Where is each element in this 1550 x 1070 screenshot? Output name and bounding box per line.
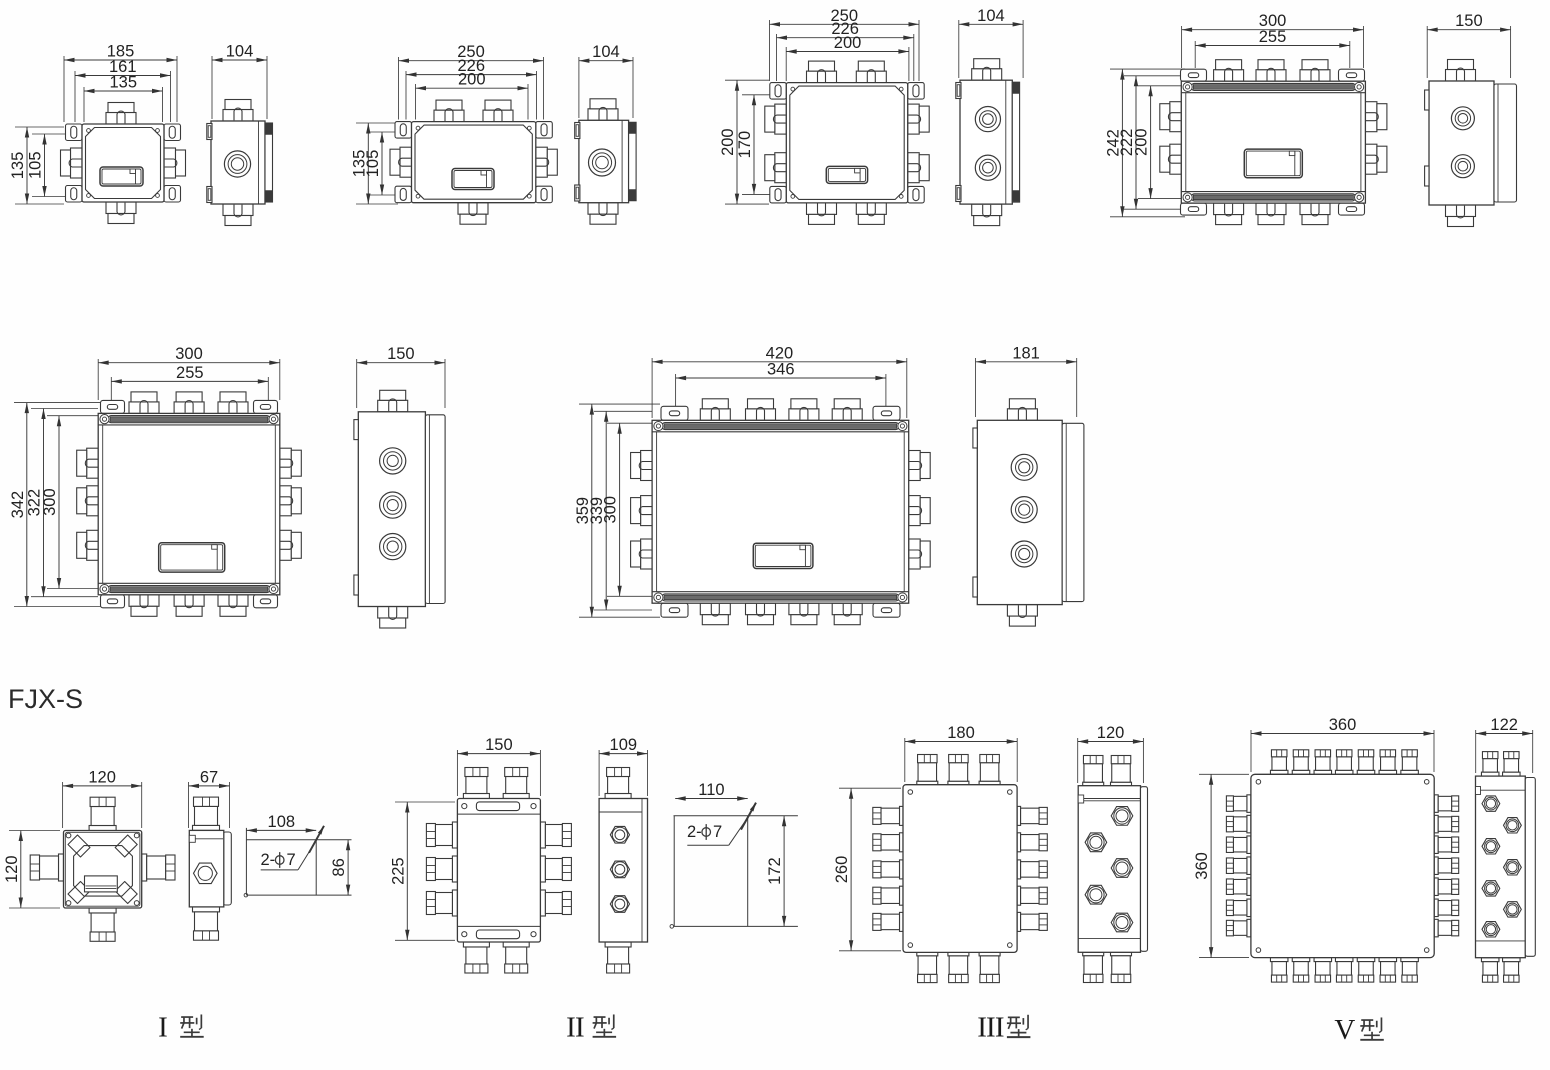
svg-text:360: 360 [1193, 852, 1211, 880]
svg-text:104: 104 [977, 7, 1005, 25]
svg-text:255: 255 [176, 364, 204, 382]
svg-text:200: 200 [834, 34, 862, 52]
svg-text:172: 172 [766, 857, 784, 885]
svg-text:104: 104 [592, 43, 620, 61]
svg-text:105: 105 [27, 151, 45, 179]
svg-text:200: 200 [458, 71, 486, 89]
svg-text:II: II [566, 1012, 584, 1044]
svg-text:V: V [1334, 1014, 1355, 1046]
svg-text:III: III [977, 1012, 1004, 1044]
svg-text:135: 135 [109, 74, 137, 92]
svg-text:7: 7 [287, 851, 296, 869]
svg-text:200: 200 [719, 128, 737, 156]
svg-text:104: 104 [226, 43, 254, 61]
svg-text:2-: 2- [687, 823, 702, 841]
svg-text:170: 170 [736, 131, 754, 159]
svg-text:181: 181 [1012, 344, 1040, 362]
svg-text:260: 260 [833, 856, 851, 884]
svg-text:255: 255 [1259, 28, 1287, 46]
svg-text:360: 360 [1329, 716, 1357, 734]
svg-text:346: 346 [767, 361, 795, 379]
svg-text:342: 342 [9, 491, 27, 519]
svg-text:110: 110 [698, 781, 724, 799]
svg-text:86: 86 [330, 858, 348, 876]
svg-text:120: 120 [1097, 724, 1125, 742]
svg-text:300: 300 [175, 345, 203, 363]
svg-text:180: 180 [947, 724, 975, 742]
svg-text:67: 67 [200, 768, 218, 786]
svg-text:120: 120 [88, 768, 116, 786]
svg-text:150: 150 [1455, 12, 1483, 30]
svg-text:108: 108 [268, 813, 296, 831]
svg-text:2-: 2- [261, 851, 276, 869]
svg-text:225: 225 [389, 857, 407, 885]
svg-text:120: 120 [3, 855, 21, 883]
svg-text:FJX-S: FJX-S [8, 684, 83, 714]
svg-text:I: I [158, 1012, 168, 1044]
svg-text:122: 122 [1490, 716, 1518, 734]
svg-text:200: 200 [1133, 128, 1151, 156]
svg-text:109: 109 [610, 736, 638, 754]
svg-text:150: 150 [387, 345, 415, 363]
svg-text:7: 7 [713, 823, 722, 841]
svg-text:300: 300 [602, 496, 620, 524]
svg-text:135: 135 [9, 152, 27, 180]
svg-text:105: 105 [364, 150, 382, 178]
svg-text:150: 150 [485, 736, 513, 754]
svg-text:300: 300 [41, 488, 59, 516]
